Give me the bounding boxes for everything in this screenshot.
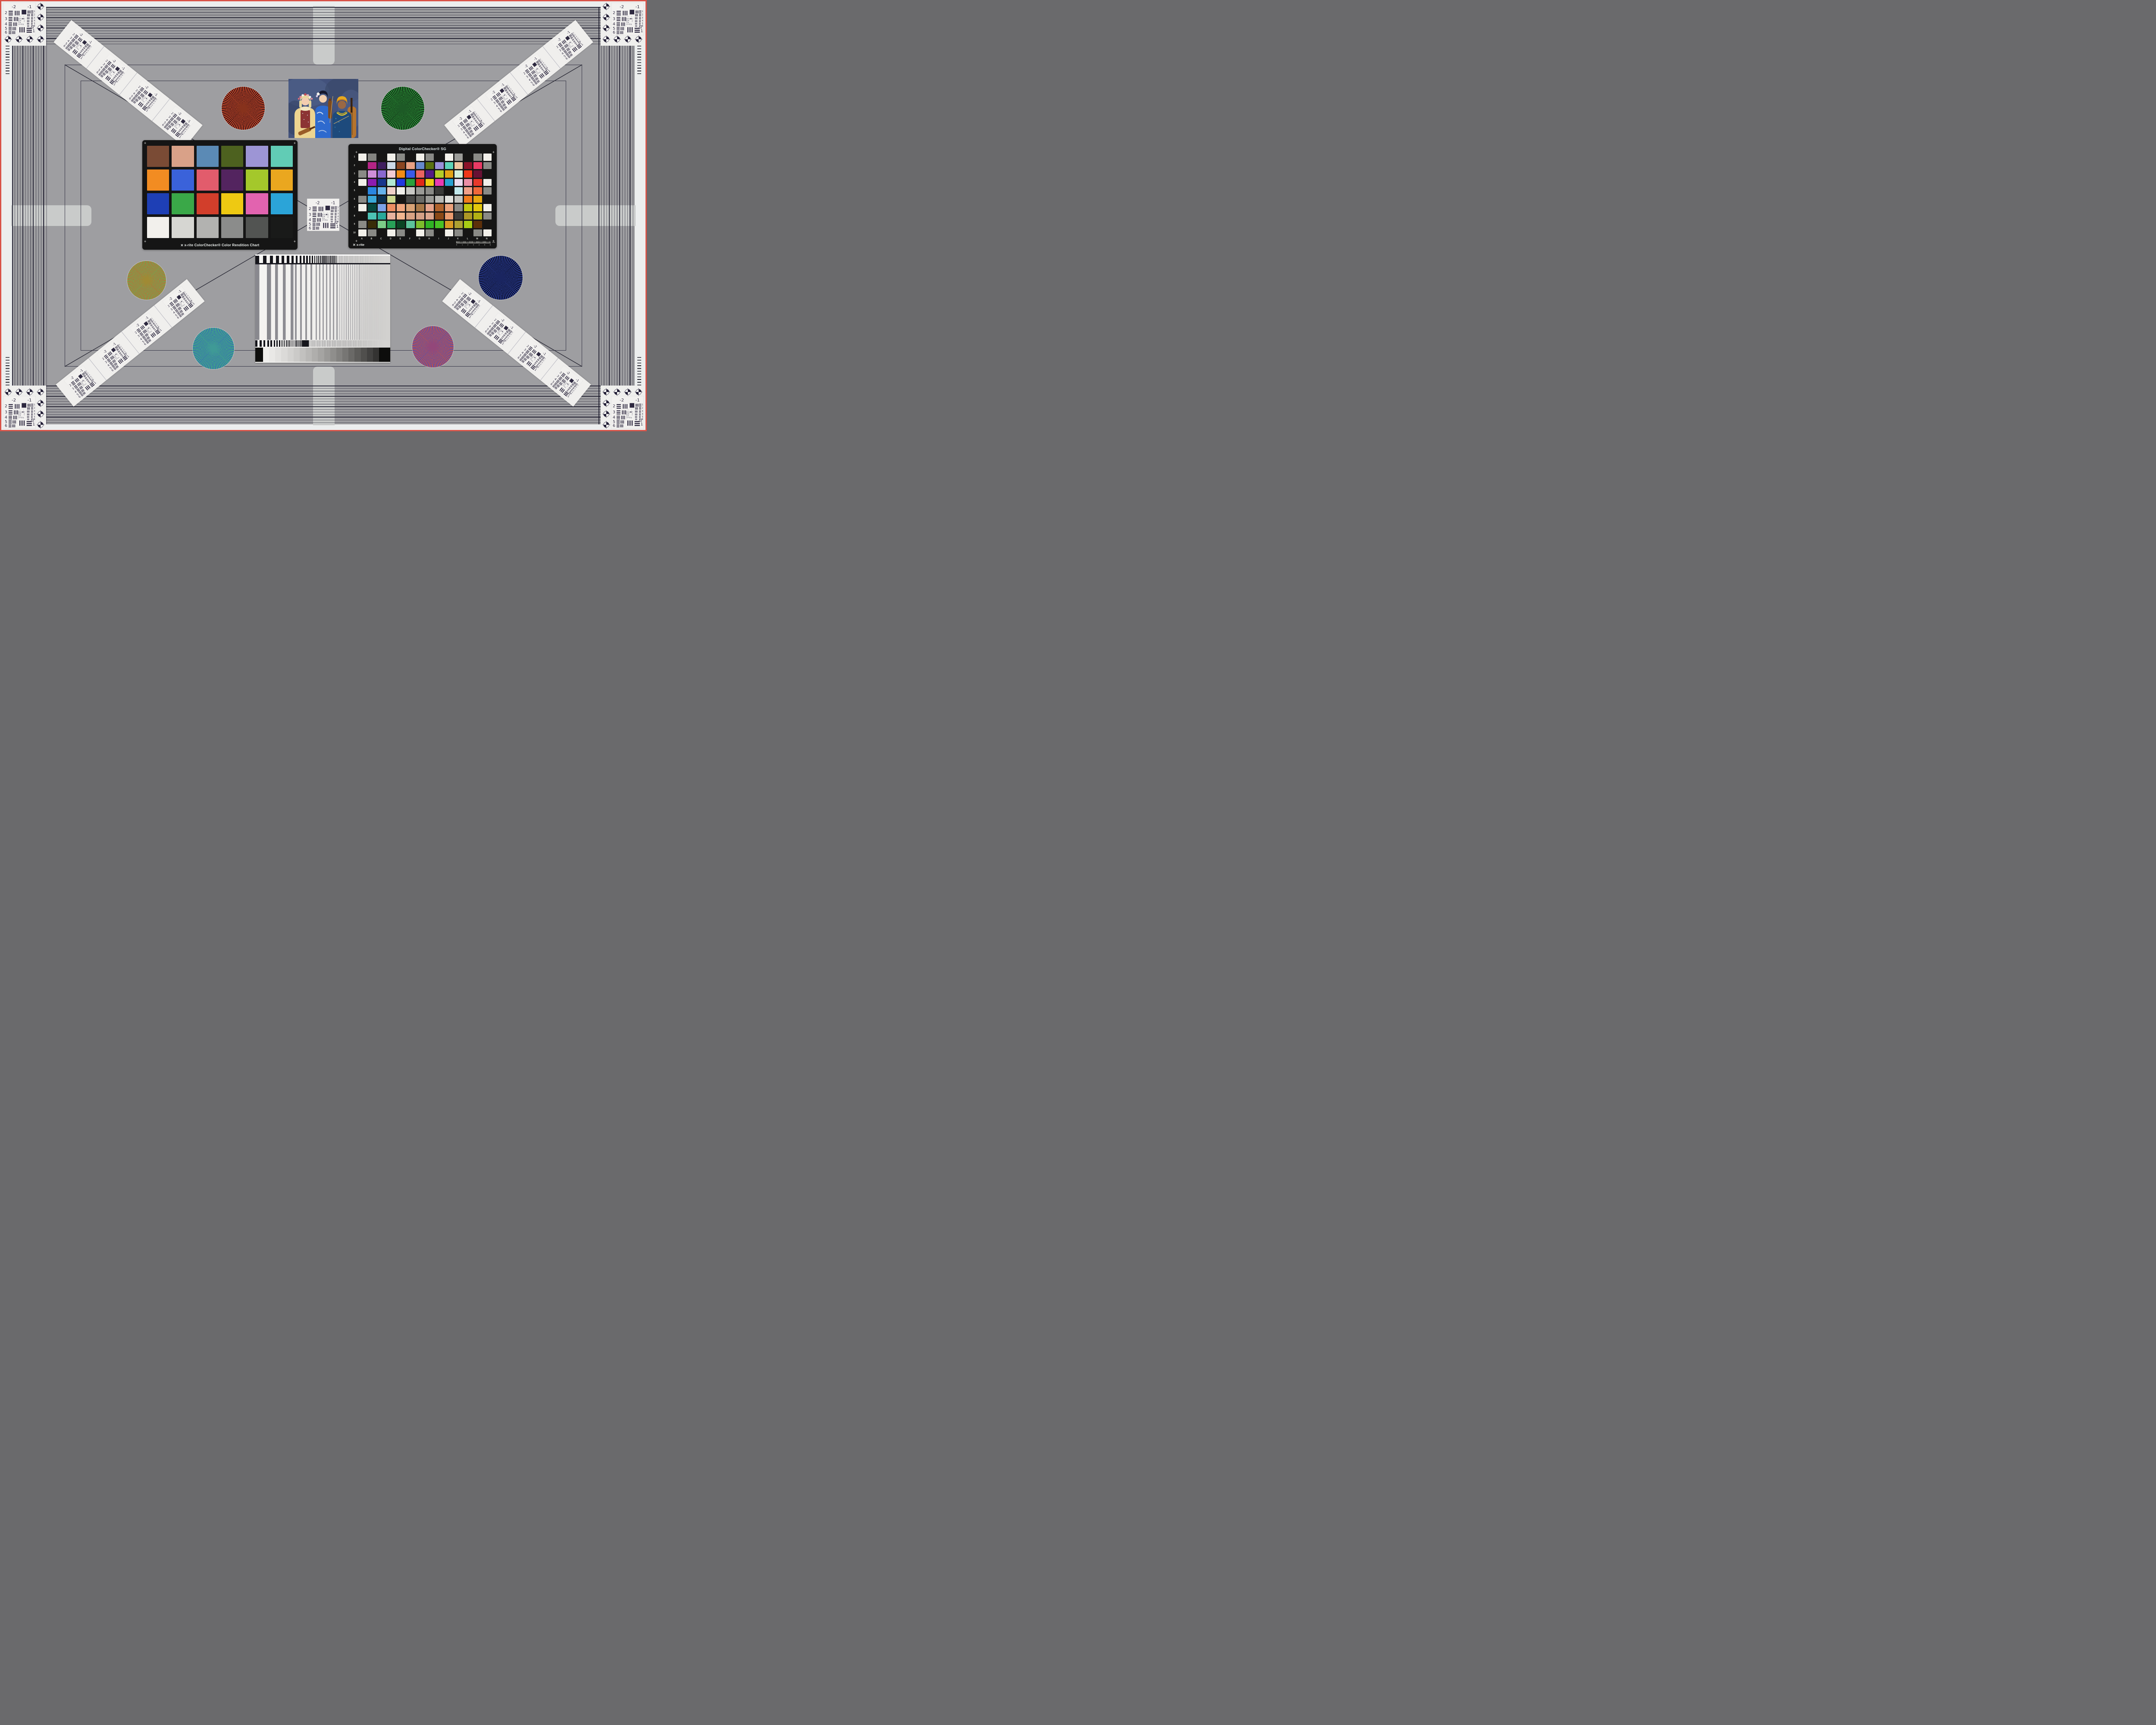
colorchecker-patch bbox=[147, 146, 169, 167]
corner-target-bottom-right bbox=[601, 386, 644, 429]
sweep-bar bbox=[263, 256, 266, 263]
sweep-bar bbox=[291, 256, 294, 263]
wedge-step bbox=[312, 348, 318, 362]
colorchecker-sg-chart: Digital ColorChecker® SG 12345678910 ABC… bbox=[348, 144, 497, 248]
sweep-bar bbox=[312, 256, 313, 263]
sweep-bar bbox=[286, 340, 287, 347]
sg-patch bbox=[416, 179, 424, 186]
sweep-bar bbox=[296, 340, 296, 347]
wedge-step bbox=[373, 348, 379, 362]
sg-row-label: 10 bbox=[352, 229, 357, 237]
sg-patch bbox=[483, 162, 492, 169]
grayscale-step-wedge bbox=[255, 348, 390, 362]
sweep-fade bbox=[329, 256, 390, 263]
registration-circles bbox=[601, 2, 644, 46]
sweep-bar bbox=[289, 340, 290, 347]
colorchecker-patch bbox=[172, 217, 194, 238]
sg-patch bbox=[416, 162, 424, 169]
wedge-step bbox=[288, 348, 294, 362]
sweep-bar bbox=[255, 340, 257, 347]
sg-patch bbox=[473, 229, 482, 237]
sg-patch bbox=[464, 179, 472, 186]
sweep-bar bbox=[294, 340, 294, 347]
sg-col-label: C bbox=[376, 238, 386, 240]
sg-patch bbox=[464, 154, 472, 161]
sweep-bar bbox=[328, 256, 328, 263]
colorchecker-title: ✕x-rite ColorChecker® Color Rendition Ch… bbox=[142, 243, 298, 247]
sg-patch bbox=[368, 170, 376, 178]
sweep-bar bbox=[327, 256, 327, 263]
sweep-bar bbox=[287, 256, 289, 263]
sweep-segment bbox=[295, 264, 316, 340]
sg-patch bbox=[435, 213, 443, 220]
registration-circles bbox=[601, 386, 644, 429]
sweep-bar bbox=[318, 256, 319, 263]
sg-patch bbox=[406, 221, 414, 228]
wedge-step bbox=[275, 348, 281, 362]
sg-patch bbox=[387, 213, 395, 220]
sg-patch bbox=[406, 213, 414, 220]
sg-patch bbox=[378, 229, 386, 237]
wedge-step bbox=[300, 348, 306, 362]
sg-patch bbox=[416, 170, 424, 178]
sg-patch bbox=[397, 187, 405, 194]
sg-patch bbox=[426, 162, 434, 169]
sg-patch bbox=[397, 229, 405, 237]
registration-mark: + bbox=[492, 151, 495, 154]
sg-patch bbox=[426, 187, 434, 194]
sweep-bar bbox=[317, 256, 317, 263]
sg-patch bbox=[483, 170, 492, 178]
sg-patch bbox=[387, 162, 395, 169]
sg-patch bbox=[378, 170, 386, 178]
sg-patch bbox=[445, 154, 453, 161]
sg-row-label: 8 bbox=[352, 213, 357, 220]
sg-patch bbox=[483, 179, 492, 186]
wedge-step bbox=[269, 348, 275, 362]
sweep-bar bbox=[296, 256, 298, 263]
sg-patch bbox=[473, 162, 482, 169]
sg-row-label: 4 bbox=[352, 179, 357, 186]
wedge-step bbox=[263, 348, 269, 362]
sg-patch bbox=[426, 196, 434, 203]
colorchecker-patch bbox=[197, 146, 219, 167]
sg-col-label: E bbox=[395, 238, 405, 240]
colorchecker-patch bbox=[246, 169, 268, 191]
sweep-bar bbox=[255, 256, 259, 263]
ruler-number: 4 bbox=[479, 244, 479, 246]
sg-patch bbox=[368, 221, 376, 228]
sg-patch bbox=[387, 154, 395, 161]
sg-patch bbox=[435, 179, 443, 186]
colorchecker-24-chart: + + + + ✕x-rite ColorChecker® Color Rend… bbox=[142, 140, 298, 250]
sweep-bar bbox=[299, 340, 299, 347]
wedge-step bbox=[361, 348, 367, 362]
sg-col-label: A bbox=[357, 238, 367, 240]
ruler-number: 3 bbox=[473, 244, 474, 246]
sg-col-label: I bbox=[434, 238, 443, 240]
sg-row-label: 3 bbox=[352, 170, 357, 178]
sg-patch bbox=[387, 187, 395, 194]
sg-patch bbox=[435, 229, 443, 237]
blue-black-star bbox=[479, 256, 523, 300]
sg-patch bbox=[483, 196, 492, 203]
colorchecker-patch bbox=[271, 169, 293, 191]
sweep-bar bbox=[263, 340, 265, 347]
musicians-test-photo bbox=[288, 79, 358, 138]
square-wave-sweep-top bbox=[255, 256, 390, 263]
sg-patch bbox=[426, 179, 434, 186]
sg-row-label: 7 bbox=[352, 204, 357, 211]
sg-patch bbox=[358, 170, 367, 178]
sweep-bar bbox=[300, 256, 301, 263]
sg-patch bbox=[378, 213, 386, 220]
ruler-number: 5 bbox=[484, 244, 485, 246]
sg-col-label: L bbox=[463, 238, 472, 240]
colorchecker-patch bbox=[172, 146, 194, 167]
sg-patch bbox=[397, 204, 405, 211]
green-blue-star bbox=[193, 328, 234, 369]
sg-patch bbox=[378, 179, 386, 186]
face-left bbox=[301, 97, 310, 106]
sg-patch bbox=[387, 179, 395, 186]
colorchecker-patch bbox=[221, 146, 243, 167]
sg-row-label: 6 bbox=[352, 196, 357, 203]
sg-patch bbox=[406, 154, 414, 161]
sweep-bar bbox=[291, 340, 292, 347]
sweep-segment bbox=[255, 264, 275, 340]
sg-patch bbox=[473, 213, 482, 220]
sweep-segment bbox=[316, 264, 337, 340]
wedge-step bbox=[318, 348, 324, 362]
sg-patch bbox=[464, 213, 472, 220]
colorchecker-patch bbox=[147, 193, 169, 214]
red-blue-star bbox=[412, 326, 454, 367]
sweep-bar bbox=[324, 256, 325, 263]
sg-patch bbox=[368, 154, 376, 161]
sg-patch bbox=[406, 162, 414, 169]
wedge-step bbox=[281, 348, 287, 362]
sg-patch bbox=[445, 187, 453, 194]
colorchecker-patch bbox=[271, 217, 293, 238]
sg-patch bbox=[464, 196, 472, 203]
sg-col-label: D bbox=[386, 238, 395, 240]
red-green-star bbox=[127, 261, 166, 300]
sg-col-label: J bbox=[444, 238, 453, 240]
sg-patch bbox=[445, 170, 453, 178]
sg-patch bbox=[483, 229, 492, 237]
colorchecker-grid bbox=[147, 146, 293, 238]
sg-patch bbox=[464, 204, 472, 211]
sg-patch bbox=[416, 221, 424, 228]
red-vest bbox=[301, 110, 310, 128]
sweep-bar bbox=[297, 340, 298, 347]
registration-mark: + bbox=[144, 142, 146, 144]
sg-patch bbox=[406, 170, 414, 178]
sg-patch bbox=[397, 162, 405, 169]
sweep-wash bbox=[355, 264, 390, 340]
sg-patch bbox=[473, 179, 482, 186]
sweep-bar bbox=[267, 340, 269, 347]
sg-patch bbox=[406, 204, 414, 211]
sg-patch bbox=[445, 221, 453, 228]
colorchecker-patch bbox=[221, 193, 243, 214]
sg-patch bbox=[378, 221, 386, 228]
sweep-bar bbox=[309, 256, 310, 263]
sweep-bar bbox=[292, 340, 293, 347]
sg-patch bbox=[397, 196, 405, 203]
registration-mark: + bbox=[355, 151, 357, 154]
sg-patch bbox=[454, 221, 463, 228]
sweep-bar bbox=[288, 340, 288, 347]
sg-patch bbox=[454, 229, 463, 237]
sweep-bar bbox=[326, 256, 326, 263]
colorchecker-patch bbox=[197, 217, 219, 238]
wedge-step bbox=[342, 348, 348, 362]
sg-patch bbox=[464, 162, 472, 169]
sg-patch bbox=[454, 162, 463, 169]
sweep-bar bbox=[284, 340, 285, 347]
colorchecker-patch bbox=[271, 146, 293, 167]
sg-patch bbox=[378, 154, 386, 161]
colorchecker-patch bbox=[197, 193, 219, 214]
green-black-star bbox=[381, 87, 424, 130]
registration-mark: + bbox=[355, 240, 357, 242]
sg-patch bbox=[368, 187, 376, 194]
sweep-bar bbox=[323, 256, 324, 263]
sweep-segment bbox=[275, 264, 295, 340]
sweep-bar bbox=[320, 256, 321, 263]
sg-patch bbox=[426, 154, 434, 161]
sweep-bar bbox=[276, 340, 278, 347]
sg-col-label: B bbox=[367, 238, 376, 240]
colorchecker-patch bbox=[221, 169, 243, 191]
sweep-bar bbox=[303, 256, 305, 263]
sg-col-label: F bbox=[405, 238, 414, 240]
registration-mark: + bbox=[144, 240, 146, 243]
sg-patch bbox=[358, 213, 367, 220]
sg-patch bbox=[358, 179, 367, 186]
sg-patch bbox=[387, 221, 395, 228]
sg-patch bbox=[378, 204, 386, 211]
registration-circles bbox=[3, 2, 46, 46]
sweep-bar bbox=[300, 340, 300, 347]
sg-patch bbox=[445, 213, 453, 220]
sg-row-label: 5 bbox=[352, 187, 357, 194]
xrite-logo-icon: ✕ bbox=[181, 244, 184, 248]
sweep-bar bbox=[314, 256, 316, 263]
ruler-number: 2 bbox=[467, 244, 468, 246]
sg-patch bbox=[454, 196, 463, 203]
sg-patch bbox=[387, 170, 395, 178]
colorchecker-patch bbox=[172, 169, 194, 191]
sweep-bar bbox=[274, 340, 275, 347]
sg-patch bbox=[464, 221, 472, 228]
sg-patch bbox=[416, 196, 424, 203]
registration-circles bbox=[3, 386, 46, 429]
sweep-bar bbox=[282, 256, 284, 263]
sg-patch bbox=[416, 204, 424, 211]
sg-patch bbox=[426, 221, 434, 228]
sweep-bar bbox=[329, 256, 329, 263]
sg-patch bbox=[406, 179, 414, 186]
registration-mark: + bbox=[492, 240, 495, 242]
colorchecker-patch bbox=[197, 169, 219, 191]
sg-patch bbox=[483, 221, 492, 228]
wedge-step bbox=[330, 348, 336, 362]
sg-patch bbox=[358, 204, 367, 211]
wedge-step bbox=[354, 348, 360, 362]
sg-patch bbox=[426, 213, 434, 220]
sg-patch bbox=[406, 187, 414, 194]
sg-brand: ✕x-rite bbox=[353, 243, 364, 247]
xrite-logo-icon: ✕ bbox=[353, 243, 356, 247]
sweep-bar bbox=[270, 256, 273, 263]
wedge-step bbox=[324, 348, 330, 362]
face-middle bbox=[319, 95, 327, 103]
colorchecker-patch bbox=[246, 193, 268, 214]
sg-patch bbox=[454, 204, 463, 211]
sg-col-label: H bbox=[424, 238, 434, 240]
sg-patch bbox=[397, 154, 405, 161]
sg-patch bbox=[406, 196, 414, 203]
sg-patch bbox=[416, 187, 424, 194]
sg-patch bbox=[368, 196, 376, 203]
sg-patch bbox=[445, 229, 453, 237]
corner-target-bottom-left bbox=[3, 386, 46, 429]
vertical-line-sweep bbox=[255, 264, 390, 340]
sg-grid: 12345678910 bbox=[352, 154, 492, 236]
sg-row-label: 9 bbox=[352, 221, 357, 228]
sweep-bar bbox=[276, 256, 279, 263]
red-black-star bbox=[222, 87, 265, 130]
sg-patch bbox=[416, 229, 424, 237]
sweep-bar bbox=[295, 340, 295, 347]
colorchecker-patch bbox=[147, 217, 169, 238]
sg-patch bbox=[473, 170, 482, 178]
sg-patch bbox=[435, 154, 443, 161]
sg-patch bbox=[378, 187, 386, 194]
sg-title: Digital ColorChecker® SG bbox=[348, 147, 497, 151]
sg-patch bbox=[435, 204, 443, 211]
sweep-bar bbox=[279, 340, 280, 347]
registration-mark: + bbox=[294, 240, 296, 243]
sg-patch bbox=[358, 187, 367, 194]
colorchecker-patch bbox=[271, 193, 293, 214]
sg-patch bbox=[387, 229, 395, 237]
center-usaf-target bbox=[307, 198, 339, 231]
sg-patch bbox=[397, 170, 405, 178]
sg-patch bbox=[426, 229, 434, 237]
sg-patch bbox=[454, 154, 463, 161]
ruler-number: 0 bbox=[456, 244, 457, 246]
sg-patch bbox=[464, 170, 472, 178]
corner-target-top-right bbox=[601, 2, 644, 46]
sg-patch bbox=[406, 229, 414, 237]
sg-column-labels: ABCDEFGHIJKLMN bbox=[357, 238, 492, 240]
sg-patch bbox=[358, 196, 367, 203]
colorchecker-patch bbox=[246, 217, 268, 238]
sg-patch bbox=[378, 196, 386, 203]
sg-patch bbox=[397, 213, 405, 220]
sg-patch bbox=[483, 187, 492, 194]
colorchecker-patch bbox=[221, 217, 243, 238]
colorchecker-patch bbox=[172, 193, 194, 214]
sg-patch bbox=[378, 162, 386, 169]
sweep-fade bbox=[329, 340, 390, 347]
sg-patch bbox=[358, 162, 367, 169]
sg-patch bbox=[454, 213, 463, 220]
sg-patch bbox=[387, 204, 395, 211]
sg-patch bbox=[445, 204, 453, 211]
wedge-black-cap bbox=[379, 348, 390, 362]
sg-patch bbox=[358, 154, 367, 161]
sg-patch bbox=[483, 154, 492, 161]
sg-patch bbox=[416, 154, 424, 161]
sg-patch bbox=[445, 196, 453, 203]
ruler-numbers: 0123456 bbox=[456, 244, 491, 246]
sg-patch bbox=[368, 162, 376, 169]
sg-patch bbox=[454, 170, 463, 178]
ruler-number: 6 bbox=[490, 244, 491, 246]
sg-patch bbox=[435, 162, 443, 169]
sg-col-label: M bbox=[472, 238, 482, 240]
sg-patch bbox=[426, 204, 434, 211]
wedge-black-cap bbox=[255, 348, 263, 362]
colorchecker-patch bbox=[147, 169, 169, 191]
sg-patch bbox=[435, 187, 443, 194]
sweep-bar bbox=[282, 340, 283, 347]
sg-row-label: 1 bbox=[352, 154, 357, 161]
ruler-number: 1 bbox=[462, 244, 463, 246]
sg-patch bbox=[473, 187, 482, 194]
wedge-step bbox=[367, 348, 373, 362]
wedge-step bbox=[348, 348, 354, 362]
sweep-bar bbox=[298, 340, 298, 347]
sg-patch bbox=[358, 221, 367, 228]
registration-mark: + bbox=[294, 142, 296, 144]
sg-patch bbox=[368, 229, 376, 237]
square-wave-sweep-bottom bbox=[255, 340, 390, 347]
ruler-ticks bbox=[456, 241, 491, 243]
sg-col-label: G bbox=[415, 238, 424, 240]
sg-patch bbox=[473, 221, 482, 228]
sg-patch bbox=[445, 179, 453, 186]
sweep-bar bbox=[270, 340, 272, 347]
sg-patch bbox=[387, 196, 395, 203]
sg-patch bbox=[358, 229, 367, 237]
sg-patch bbox=[473, 154, 482, 161]
colorchecker-patch bbox=[246, 146, 268, 167]
sg-patch bbox=[368, 213, 376, 220]
sg-patch bbox=[435, 196, 443, 203]
wedge-step bbox=[306, 348, 312, 362]
sg-mm-ruler: 0123456 mm bbox=[456, 241, 491, 246]
sg-patch bbox=[464, 187, 472, 194]
sweep-bar bbox=[260, 340, 262, 347]
sg-patch bbox=[368, 179, 376, 186]
sg-patch bbox=[483, 213, 492, 220]
wedge-step bbox=[294, 348, 300, 362]
wedge-step bbox=[336, 348, 342, 362]
sg-patch bbox=[473, 204, 482, 211]
sg-patch bbox=[464, 229, 472, 237]
sg-col-label: N bbox=[482, 238, 492, 240]
corner-target-top-left bbox=[3, 2, 46, 46]
sg-patch bbox=[368, 204, 376, 211]
sg-patch bbox=[454, 179, 463, 186]
sg-patch bbox=[397, 221, 405, 228]
